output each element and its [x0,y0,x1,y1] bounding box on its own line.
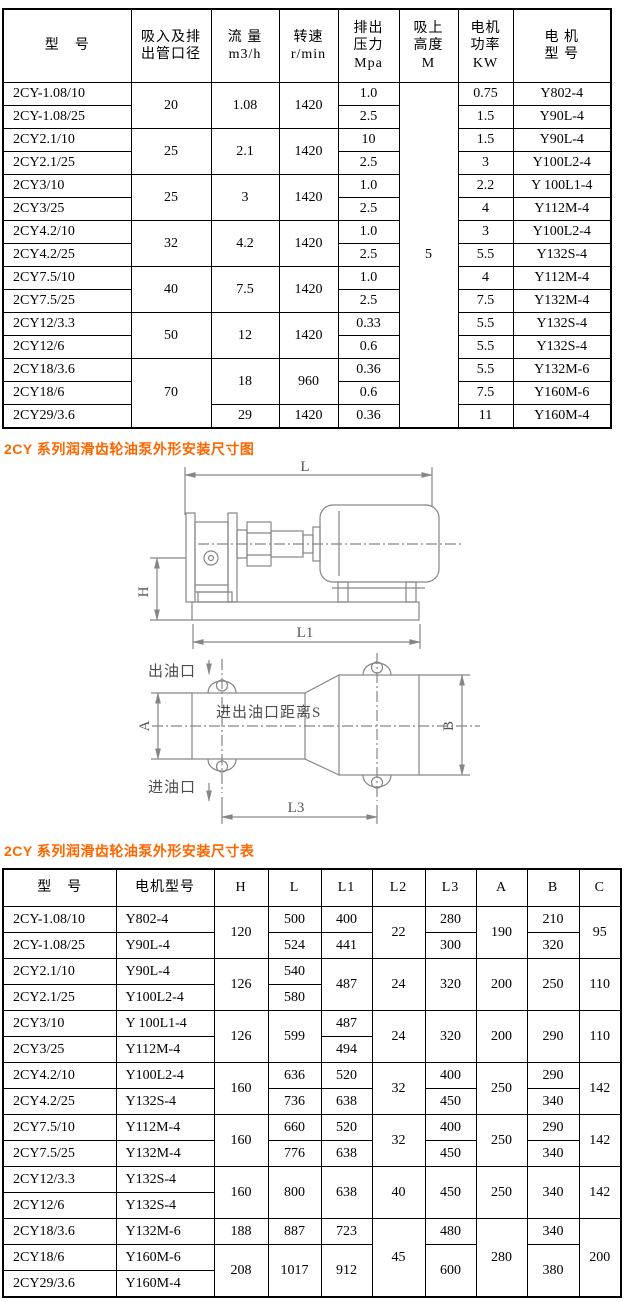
table-cell: 320 [425,1011,476,1063]
table-cell: 3 [458,221,513,244]
table-cell: 636 [268,1063,321,1089]
table-cell: 2.5 [338,106,399,129]
table-cell: 0.36 [338,405,399,429]
header-row: 型 号吸入及排 出管口径流 量 m3/h转速 r/min排出 压力 Mpa吸上 … [3,9,611,83]
column-header: 流 量 m3/h [211,9,279,83]
table-cell: 5.5 [458,336,513,359]
table-cell: Y90L-4 [116,959,214,985]
table-cell: 600 [425,1245,476,1298]
table-cell: 776 [268,1141,321,1167]
column-header: L [268,869,321,907]
table-cell: 3 [211,175,279,221]
table-cell: 4 [458,267,513,290]
table-cell: 160 [214,1167,268,1219]
table-cell: 2CY12/6 [3,1193,116,1219]
table-cell: 2.1 [211,129,279,175]
table-cell: 380 [527,1245,579,1298]
label-L: L [300,461,309,475]
table-cell: 441 [321,933,372,959]
table-cell: 95 [579,907,621,959]
table-cell: 520 [321,1115,372,1141]
table-cell: 1.0 [338,267,399,290]
table-cell: 3 [458,152,513,175]
table-cell: Y132M-4 [116,1141,214,1167]
table-cell: 2CY7.5/10 [3,1115,116,1141]
table-cell: 1.5 [458,106,513,129]
table-cell: 2CY-1.08/10 [3,83,131,106]
table-cell: 32 [131,221,211,267]
header-row: 型 号电机型号HLL1L2L3ABC [3,869,621,907]
table-cell: 487 [321,959,372,1011]
table-cell: 800 [268,1167,321,1219]
table-cell: Y100L2-4 [513,152,611,175]
installation-drawing: L H L1 出油口 进出油口距离S 进油口 A B L3 [2,461,624,839]
label-A: A [137,720,153,731]
table-cell: Y132S-4 [116,1193,214,1219]
dimension-section-heading: 2CY 系列润滑齿轮油泵外形安装尺寸表 [4,841,624,861]
table-cell: 2CY2.1/25 [3,985,116,1011]
installation-dimension-table: 型 号电机型号HLL1L2L3ABC2CY-1.08/10Y802-412050… [2,868,622,1298]
table-cell: Y160M-6 [116,1245,214,1271]
table-cell: 160 [214,1063,268,1115]
table-cell: 208 [214,1245,268,1298]
table-cell: 2CY18/6 [3,382,131,405]
table-cell: 25 [131,129,211,175]
table-cell: 2CY2.1/10 [3,959,116,985]
table-cell: 110 [579,1011,621,1063]
table-cell: 1420 [279,267,338,313]
table-cell: 0.33 [338,313,399,336]
table-cell: 7.5 [211,267,279,313]
table-cell: 340 [527,1219,579,1245]
table-cell: 2CY7.5/10 [3,267,131,290]
table-cell: Y90L-4 [116,933,214,959]
table-cell: 2CY3/10 [3,175,131,198]
table-cell: 960 [279,359,338,405]
table-cell: Y132S-4 [513,336,611,359]
table-cell: 638 [321,1089,372,1115]
table-cell: Y132M-6 [513,359,611,382]
table-cell: Y100L2-4 [116,985,214,1011]
column-header: B [527,869,579,907]
table-cell: 340 [527,1141,579,1167]
table-cell: 110 [579,959,621,1011]
table-row: 2CY18/3.6Y132M-618888772345480280340200 [3,1219,621,1245]
table-cell: 5.5 [458,359,513,382]
table-cell: 250 [527,959,579,1011]
column-header: 电机 功率 KW [458,9,513,83]
table-row: 2CY3/10Y 100L1-412659948724320200290110 [3,1011,621,1037]
table-row: 2CY7.5/10Y112M-416066052032400250290142 [3,1115,621,1141]
table-cell: 2.5 [338,198,399,221]
table-cell: 1.0 [338,175,399,198]
table-row: 2CY18/6Y160M-62081017912600380 [3,1245,621,1271]
table-cell: 12 [211,313,279,359]
mounting-ears [208,662,391,788]
column-header: L3 [425,869,476,907]
table-row: 2CY18/3.670189600.365.5Y132M-6 [3,359,611,382]
table-cell: 126 [214,1011,268,1063]
column-header: 吸上 高度 M [399,9,458,83]
table-cell: 24 [372,959,425,1011]
table-cell: 10 [338,129,399,152]
table-cell: 250 [476,1115,527,1167]
table-cell: 480 [425,1219,476,1245]
column-header: C [579,869,621,907]
table-row: 2CY-1.08/10201.0814201.050.75Y802-4 [3,83,611,106]
table-cell: 638 [321,1141,372,1167]
column-header: 转速 r/min [279,9,338,83]
table-row: 2CY4.2/25Y132S-4736638450340 [3,1089,621,1115]
table-cell: 45 [372,1219,425,1298]
table-cell: 2CY3/10 [3,1011,116,1037]
label-H: H [136,586,152,597]
table-cell: 188 [214,1219,268,1245]
table-row: 2CY2.1/10Y90L-412654048724320200250110 [3,959,621,985]
table-cell: Y100L2-4 [513,221,611,244]
table-row: 2CY3/1025314201.02.2Y 100L1-4 [3,175,611,198]
table-cell: 280 [425,907,476,933]
table-cell: Y112M-4 [116,1037,214,1063]
table-cell: 300 [425,933,476,959]
table-cell: 2CY4.2/25 [3,1089,116,1115]
table-cell: 0.6 [338,382,399,405]
column-header: A [476,869,527,907]
motor-side [320,505,439,602]
table-cell: 450 [425,1089,476,1115]
table-cell: 1420 [279,175,338,221]
table-cell: 4 [458,198,513,221]
table-row: 2CY7.5/10407.514201.04Y112M-4 [3,267,611,290]
table-cell: 250 [476,1167,527,1219]
table-cell: 2CY2.1/25 [3,152,131,175]
table-cell: 5.5 [458,244,513,267]
table-row: 2CY4.2/10Y100L2-416063652032400250290142 [3,1063,621,1089]
table-cell: 1.08 [211,83,279,129]
table-cell: 142 [579,1063,621,1115]
table-cell: 18 [211,359,279,405]
table-cell: 290 [527,1063,579,1089]
table-cell: 340 [527,1167,579,1219]
column-header: H [214,869,268,907]
table-cell: 190 [476,907,527,959]
table-cell: 2CY-1.08/25 [3,933,116,959]
table-cell: 1420 [279,313,338,359]
table-cell: 0.36 [338,359,399,382]
label-outlet: 出油口 [148,663,196,680]
table-cell: 2CY18/3.6 [3,359,131,382]
table-cell: 160 [214,1115,268,1167]
table-cell: Y132M-6 [116,1219,214,1245]
table-cell: 290 [527,1115,579,1141]
table-row: 2CY2.1/10252.11420101.5Y90L-4 [3,129,611,152]
table-cell: 25 [131,175,211,221]
label-B: B [441,721,457,731]
table-cell: 2CY3/25 [3,198,131,221]
label-L1: L1 [297,625,314,641]
table-cell: Y160M-6 [513,382,611,405]
top-view [151,653,480,824]
column-header: 型 号 [3,869,116,907]
table-cell: 912 [321,1245,372,1298]
table-cell: Y112M-4 [513,267,611,290]
table-cell: Y132M-4 [513,290,611,313]
table-cell: 887 [268,1219,321,1245]
coupling [198,522,464,566]
table-cell: 7.5 [458,290,513,313]
table-row: 2CY29/3.62914200.3611Y160M-4 [3,405,611,429]
table-cell: Y 100L1-4 [116,1011,214,1037]
table-cell: 2CY7.5/25 [3,1141,116,1167]
table-cell: 2CY12/3.3 [3,1167,116,1193]
table-cell: 450 [425,1141,476,1167]
table-cell: 50 [131,313,211,359]
table-cell: 2CY12/6 [3,336,131,359]
table-cell: 580 [268,985,321,1011]
column-header: L2 [372,869,425,907]
table-cell: Y112M-4 [513,198,611,221]
table-cell: 1420 [279,83,338,129]
table-cell: 1420 [279,221,338,267]
table-cell: 11 [458,405,513,429]
table-cell: 200 [476,959,527,1011]
table-cell: 2CY18/3.6 [3,1219,116,1245]
table-cell: 200 [476,1011,527,1063]
table-row: 2CY12/3.3501214200.335.5Y132S-4 [3,313,611,336]
table-cell: 1.0 [338,83,399,106]
table-cell: Y112M-4 [116,1115,214,1141]
table-cell: 2CY4.2/10 [3,1063,116,1089]
table-row: 2CY-1.08/10Y802-41205004002228019021095 [3,907,621,933]
table-cell: 340 [527,1089,579,1115]
column-header: 吸入及排 出管口径 [131,9,211,83]
table-cell: 400 [425,1063,476,1089]
table-cell: 2.2 [458,175,513,198]
table-cell: 450 [425,1167,476,1219]
table-cell: Y132S-4 [116,1089,214,1115]
table-cell: 2CY2.1/10 [3,129,131,152]
diagram-section-heading: 2CY 系列润滑齿轮油泵外形安装尺寸图 [4,439,624,459]
table-cell: 280 [476,1219,527,1298]
table-cell: 0.75 [458,83,513,106]
table-cell: 320 [527,933,579,959]
table-cell: Y160M-4 [116,1271,214,1298]
table-row: 2CY4.2/10324.214201.03Y100L2-4 [3,221,611,244]
table-cell: 524 [268,933,321,959]
table-cell: 660 [268,1115,321,1141]
table-cell: Y802-4 [116,907,214,933]
table-cell: 290 [527,1011,579,1063]
table-cell: 22 [372,907,425,959]
table-cell: 29 [211,405,279,429]
table-cell: 1.0 [338,221,399,244]
table-cell: 142 [579,1167,621,1219]
base-plate [192,602,419,620]
table-row: 2CY-1.08/25Y90L-4524441300320 [3,933,621,959]
table-cell: 2CY3/25 [3,1037,116,1063]
table-cell: 120 [214,907,268,959]
table-cell: 638 [321,1167,372,1219]
table-cell: 40 [372,1167,425,1219]
table-cell: 487 [321,1011,372,1037]
table-cell: 2.5 [338,290,399,313]
table-cell: 2.5 [338,152,399,175]
table-cell: 500 [268,907,321,933]
table-cell: 40 [131,267,211,313]
page: 型 号吸入及排 出管口径流 量 m3/h转速 r/min排出 压力 Mpa吸上 … [0,0,624,1298]
table-cell: 2CY18/6 [3,1245,116,1271]
column-header: 型 号 [3,9,131,83]
table-cell: 320 [425,959,476,1011]
column-header: 电机型号 [116,869,214,907]
table-cell: 20 [131,83,211,129]
table-cell: 400 [321,907,372,933]
column-header: L1 [321,869,372,907]
table-cell: 1420 [279,129,338,175]
table-cell: 2CY-1.08/10 [3,907,116,933]
table-cell: 2.5 [338,244,399,267]
table-cell: 126 [214,959,268,1011]
table-cell: 2CY12/3.3 [3,313,131,336]
pump-port-circle [204,551,218,565]
column-header: 电 机 型 号 [513,9,611,83]
table-cell: 0.6 [338,336,399,359]
table-cell: 494 [321,1037,372,1063]
table-cell: 1017 [268,1245,321,1298]
table-cell: 1.5 [458,129,513,152]
table-cell: 520 [321,1063,372,1089]
pump-side [186,513,237,602]
table-cell: 7.5 [458,382,513,405]
table-cell: Y160M-4 [513,405,611,429]
table-cell: 210 [527,907,579,933]
table-cell: 250 [476,1063,527,1115]
table-cell: 599 [268,1011,321,1063]
table-cell: 2CY-1.08/25 [3,106,131,129]
table-cell: Y802-4 [513,83,611,106]
table-cell: 2CY29/3.6 [3,1271,116,1298]
table-cell: 4.2 [211,221,279,267]
table-cell: 200 [579,1219,621,1298]
table-cell: Y132S-4 [116,1167,214,1193]
pump-spec-table: 型 号吸入及排 出管口径流 量 m3/h转速 r/min排出 压力 Mpa吸上 … [2,8,612,429]
table-cell: 5.5 [458,313,513,336]
table-cell: 2CY7.5/25 [3,290,131,313]
table-cell: 723 [321,1219,372,1245]
table-cell: 2CY29/3.6 [3,405,131,429]
column-header: 排出 压力 Mpa [338,9,399,83]
table-cell: 2CY4.2/25 [3,244,131,267]
label-port-distance: 进出油口距离S [216,704,321,721]
side-view [150,467,464,649]
table-cell: Y90L-4 [513,106,611,129]
table-cell: 32 [372,1115,425,1167]
table-cell: 736 [268,1089,321,1115]
table-cell: Y100L2-4 [116,1063,214,1089]
table-cell: Y132S-4 [513,313,611,336]
table-cell: Y90L-4 [513,129,611,152]
table-row: 2CY7.5/25Y132M-4776638450340 [3,1141,621,1167]
table-cell: 32 [372,1063,425,1115]
table-cell: 24 [372,1011,425,1063]
table-cell: 400 [425,1115,476,1141]
table-cell: 70 [131,359,211,429]
table-cell: 540 [268,959,321,985]
table-cell: 2CY4.2/10 [3,221,131,244]
table-cell: Y132S-4 [513,244,611,267]
label-inlet: 进油口 [148,779,196,796]
table-cell: 1420 [279,405,338,429]
label-L3: L3 [288,800,305,816]
table-cell: Y 100L1-4 [513,175,611,198]
table-row: 2CY12/3.3Y132S-416080063840450250340142 [3,1167,621,1193]
table-cell: 142 [579,1115,621,1167]
table-cell: 5 [399,83,458,429]
